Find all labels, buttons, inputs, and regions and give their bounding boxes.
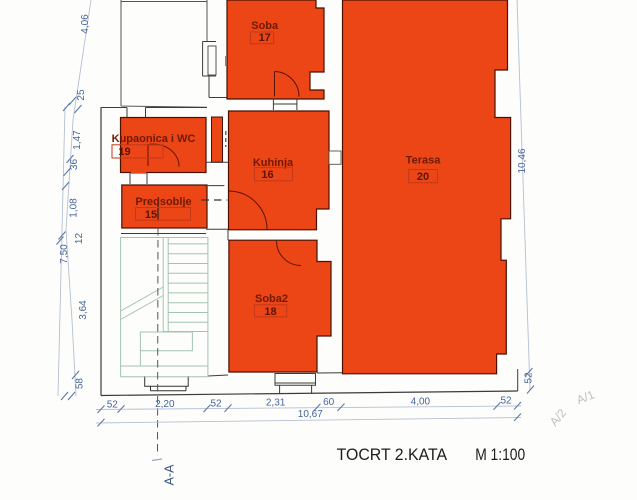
- svg-text:Kupaonica i WC: Kupaonica i WC: [112, 133, 196, 145]
- svg-text:M 1:100: M 1:100: [475, 445, 525, 464]
- svg-text:52: 52: [210, 398, 222, 409]
- svg-text:16: 16: [261, 169, 273, 181]
- svg-text:12: 12: [74, 233, 85, 245]
- svg-text:52: 52: [107, 399, 119, 410]
- svg-text:2,31: 2,31: [266, 398, 286, 409]
- svg-text:4,06: 4,06: [80, 14, 91, 34]
- svg-text:20: 20: [417, 171, 429, 183]
- svg-text:15: 15: [145, 209, 157, 221]
- svg-text:58: 58: [75, 378, 86, 390]
- svg-text:52: 52: [524, 372, 535, 384]
- svg-text:1,47: 1,47: [72, 130, 83, 150]
- svg-text:18: 18: [264, 306, 276, 318]
- svg-text:10,67: 10,67: [298, 409, 323, 420]
- svg-text:A-A: A-A: [163, 464, 177, 486]
- svg-text:17: 17: [259, 32, 271, 44]
- svg-text:10,46: 10,46: [517, 148, 528, 173]
- svg-text:60: 60: [323, 397, 335, 408]
- svg-text:Soba2: Soba2: [255, 293, 288, 305]
- svg-text:19: 19: [118, 146, 130, 158]
- svg-text:Soba: Soba: [251, 20, 279, 32]
- svg-text:7,50: 7,50: [59, 244, 70, 264]
- svg-text:4,00: 4,00: [411, 396, 431, 407]
- svg-text:36: 36: [69, 159, 80, 171]
- svg-text:52: 52: [500, 396, 512, 407]
- svg-text:25: 25: [76, 89, 87, 101]
- svg-text:1,08: 1,08: [69, 198, 80, 218]
- svg-text:3,64: 3,64: [78, 300, 89, 320]
- svg-text:2,20: 2,20: [155, 399, 175, 410]
- svg-text:TOCRT 2.KATA: TOCRT 2.KATA: [337, 445, 448, 464]
- svg-text:Predsoblje: Predsoblje: [135, 196, 191, 208]
- svg-text:Terasa: Terasa: [406, 155, 442, 167]
